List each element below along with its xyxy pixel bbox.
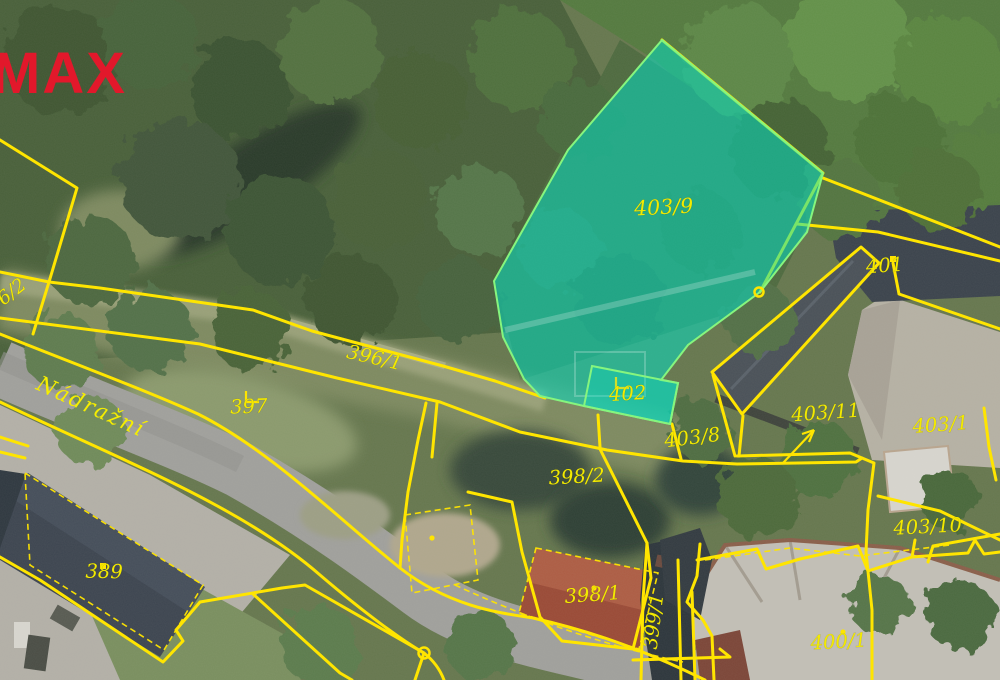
parcel-label-398-2: 398/2 (548, 464, 605, 490)
cadastral-map-canvas[interactable]: 396/2 396/1 397 389 398/2 398/1 399/1 40… (0, 0, 1000, 680)
brand-watermark: MAX (0, 41, 127, 106)
parcel-label-403-9: 403/9 (633, 193, 694, 220)
parcel-label-403-1: 403/1 (911, 411, 970, 438)
parcel-label-401: 401 (864, 253, 904, 279)
parcel-label-397: 397 (230, 394, 269, 418)
parcel-label-400-1: 400/1 (809, 629, 867, 655)
parcel-label-402: 402 (607, 381, 646, 406)
aerial-terrain (0, 0, 1000, 680)
parcel-label-398-1: 398/1 (564, 581, 622, 608)
parcel-label-403-10: 403/10 (892, 513, 963, 540)
parcel-label-403-11: 403/11 (790, 399, 861, 427)
dot-398-2-inner (429, 535, 434, 540)
parcel-label-389: 389 (85, 560, 123, 584)
watermark-text: MAX (0, 41, 127, 106)
map-svg: 396/2 396/1 397 389 398/2 398/1 399/1 40… (0, 0, 1000, 680)
